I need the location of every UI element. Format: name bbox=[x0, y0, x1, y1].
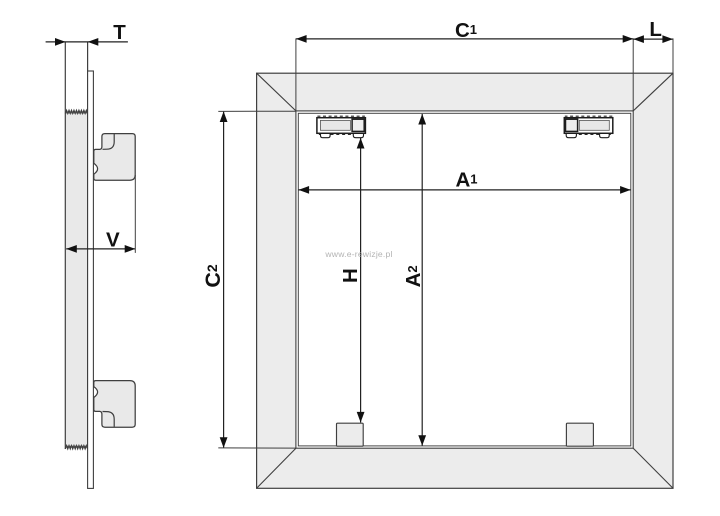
svg-text:V: V bbox=[106, 228, 120, 251]
svg-text:A1: A1 bbox=[455, 168, 477, 191]
svg-text:H: H bbox=[339, 268, 362, 283]
svg-text:www.e-rewizje.pl: www.e-rewizje.pl bbox=[324, 249, 392, 259]
svg-text:C2: C2 bbox=[201, 264, 225, 288]
svg-text:T: T bbox=[113, 21, 126, 44]
svg-text:L: L bbox=[649, 18, 662, 41]
